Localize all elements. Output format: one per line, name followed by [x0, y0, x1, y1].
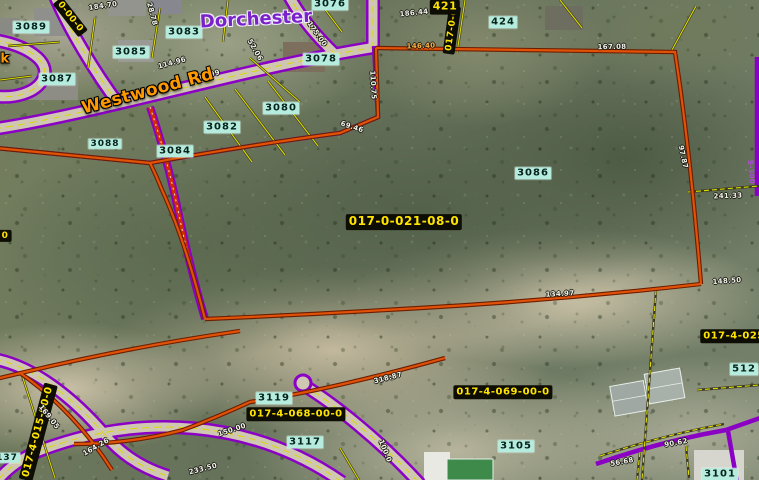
lot-number-label: 3119 [256, 392, 292, 404]
sports-field [447, 459, 493, 480]
dimension-label: 110.75 [368, 70, 378, 99]
parcel-id-label: 017-4-069-00-0 [453, 385, 552, 399]
lot-number-label: 3078 [303, 53, 339, 65]
street-name-label: k [0, 53, 9, 68]
parcel-id-label: 017-0-021-08-0 [346, 214, 462, 230]
lot-number-label: 3088 [88, 139, 121, 149]
dimension-label: 167.08 [598, 43, 627, 52]
lot-number-label: 512 [730, 363, 758, 375]
lot-number-label: 3086 [515, 167, 551, 179]
dimension-label: 241.33 [713, 191, 742, 200]
dimension-label: 146.40 [406, 41, 435, 50]
gis-map-viewport[interactable]: 3089308330853087308830843082308030783076… [0, 0, 759, 480]
lot-number-label: 3089 [13, 21, 49, 33]
lot-number-label: 3117 [287, 436, 323, 448]
parcel-id-label: 017-4-068-00-0 [246, 407, 345, 421]
lot-number-label: 137 [0, 453, 20, 463]
map-vector-overlay [0, 0, 759, 480]
parcel-id-label: 017-4-025 [700, 329, 759, 343]
lot-number-label: 3101 [702, 468, 738, 480]
lot-number-label: 424 [489, 16, 517, 28]
parcel-id-label: 421 [430, 0, 460, 14]
lot-number-label: 3105 [498, 440, 534, 452]
dimension-label: 134.97 [545, 289, 574, 299]
lot-number-label: 3085 [113, 46, 149, 58]
lot-number-label: 3084 [157, 145, 193, 157]
lot-number-label: 3087 [39, 73, 75, 85]
cul-de-sac [295, 375, 311, 391]
lot-number-label: 3082 [204, 121, 240, 133]
lot-number-label: 3076 [312, 0, 348, 10]
lot-number-label: 3083 [166, 26, 202, 38]
parcel-id-label: 0 [0, 230, 11, 242]
lot-number-label: 3080 [263, 102, 299, 114]
